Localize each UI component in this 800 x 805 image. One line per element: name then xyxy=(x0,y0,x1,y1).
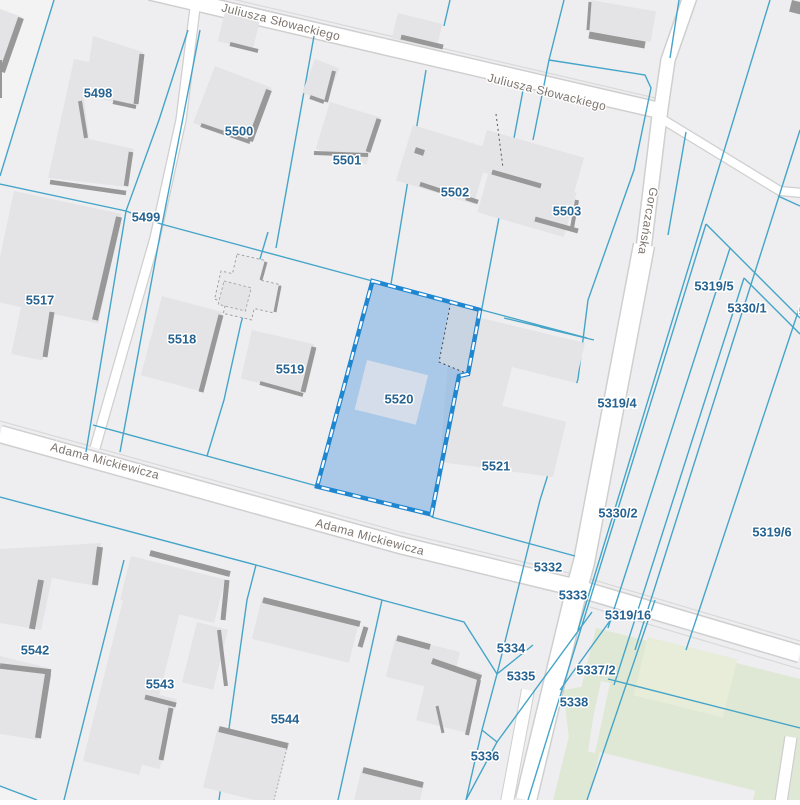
svg-text:5519: 5519 xyxy=(276,362,304,377)
svg-text:5332: 5332 xyxy=(534,560,562,575)
svg-text:5499: 5499 xyxy=(132,210,160,225)
svg-text:5334: 5334 xyxy=(497,641,526,656)
svg-text:5520: 5520 xyxy=(385,392,414,407)
svg-text:5336: 5336 xyxy=(471,749,499,764)
svg-text:5517: 5517 xyxy=(26,293,54,308)
svg-text:5338: 5338 xyxy=(560,695,588,710)
svg-text:5335: 5335 xyxy=(507,669,535,684)
svg-text:5501: 5501 xyxy=(333,153,361,168)
svg-text:5319/16: 5319/16 xyxy=(605,608,651,623)
svg-text:5500: 5500 xyxy=(225,124,253,139)
svg-text:5503: 5503 xyxy=(553,204,581,219)
svg-text:5330/1: 5330/1 xyxy=(727,301,766,316)
svg-text:5319/6: 5319/6 xyxy=(752,525,791,540)
svg-text:5337/2: 5337/2 xyxy=(576,663,615,678)
svg-text:5498: 5498 xyxy=(84,86,112,101)
svg-text:5518: 5518 xyxy=(168,332,196,347)
svg-text:5330/2: 5330/2 xyxy=(598,506,637,521)
svg-text:5333: 5333 xyxy=(559,588,587,603)
svg-text:5502: 5502 xyxy=(441,185,469,200)
svg-text:5319/4: 5319/4 xyxy=(597,396,637,411)
svg-text:5544: 5544 xyxy=(271,712,300,727)
svg-text:5319/5: 5319/5 xyxy=(694,279,733,294)
svg-text:5542: 5542 xyxy=(21,643,49,658)
svg-text:5521: 5521 xyxy=(482,459,510,474)
svg-text:5543: 5543 xyxy=(146,677,174,692)
